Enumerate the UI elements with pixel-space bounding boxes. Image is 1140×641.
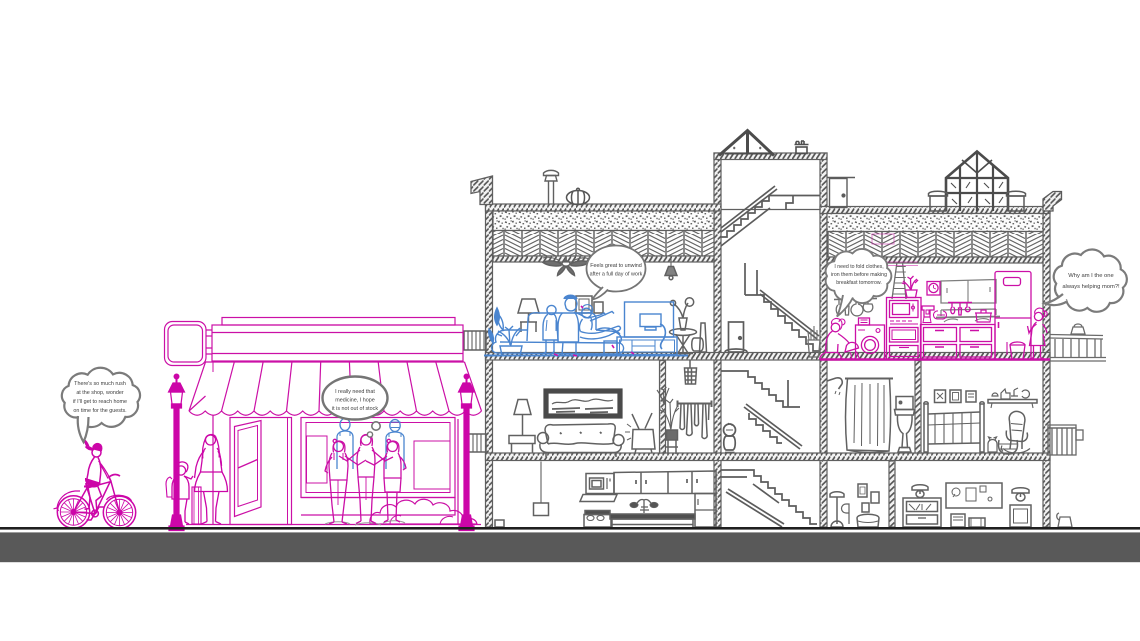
- svg-text:Why am I the one: Why am I the one: [1068, 273, 1113, 279]
- svg-text:medicine, I hope: medicine, I hope: [335, 398, 375, 404]
- svg-text:at the shop, wonder: at the shop, wonder: [76, 390, 124, 396]
- svg-text:after a full day of work: after a full day of work: [590, 272, 643, 278]
- svg-text:There's so much rush: There's so much rush: [74, 381, 126, 387]
- svg-text:it is not out of stock: it is not out of stock: [332, 406, 378, 412]
- svg-text:breakfast tomorrow.: breakfast tomorrow.: [836, 280, 882, 286]
- svg-text:always helping mom?!: always helping mom?!: [1062, 284, 1120, 290]
- svg-text:if I'll get to reach home: if I'll get to reach home: [73, 399, 127, 405]
- svg-text:iron them before making: iron them before making: [831, 272, 887, 278]
- svg-text:on time for the guests.: on time for the guests.: [73, 408, 126, 414]
- svg-text:Feels great to unwind: Feels great to unwind: [590, 263, 642, 269]
- svg-text:I really need that: I really need that: [335, 389, 375, 395]
- svg-text:I need to fold clothes,: I need to fold clothes,: [834, 264, 883, 270]
